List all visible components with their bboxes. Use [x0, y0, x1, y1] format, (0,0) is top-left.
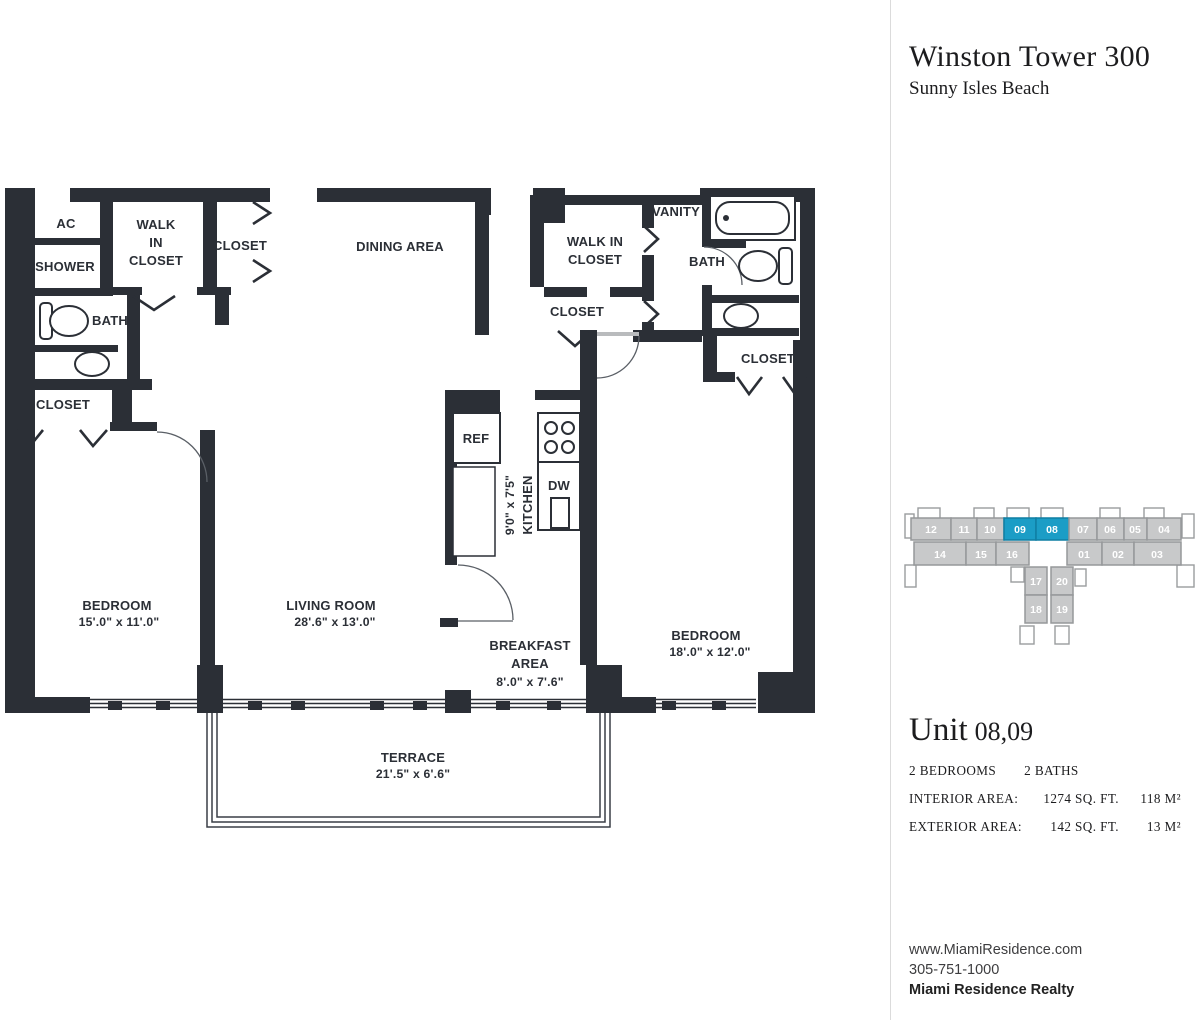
label-breakfast-1: BREAKFAST: [489, 638, 570, 653]
toilet-icon-bath1: [40, 303, 88, 339]
label-closet-bed2: CLOSET: [741, 351, 795, 366]
exterior-area-sqft: 142 SQ. FT.: [1027, 819, 1119, 835]
dishwasher-icon: [538, 462, 580, 530]
interior-area-label: INTERIOR AREA:: [909, 791, 1027, 807]
label-shower: SHOWER: [35, 259, 95, 274]
locator-units: 12 11 10 09 08 07 06 05 04 14 15 16 01 0…: [911, 518, 1181, 623]
label-bedroom2: BEDROOM: [671, 628, 740, 643]
locator-unit-01: 01: [1067, 542, 1102, 565]
building-name: Winston Tower 300: [909, 40, 1150, 74]
realtor-footer: www.MiamiResidence.com 305-751-1000 Miam…: [909, 940, 1082, 1000]
floor-plan: AC SHOWER BATH CLOSET WALK IN CLOSET CLO…: [0, 0, 890, 1020]
svg-text:09: 09: [1014, 524, 1026, 536]
interior-area-row: INTERIOR AREA: 1274 SQ. FT. 118 M²: [909, 791, 1181, 807]
svg-text:19: 19: [1056, 604, 1068, 616]
svg-text:18: 18: [1030, 604, 1042, 616]
label-bath2: BATH: [689, 254, 725, 269]
locator-unit-15: 15: [966, 542, 996, 565]
locator-unit-18: 18: [1025, 595, 1047, 623]
room-labels: AC SHOWER BATH CLOSET WALK IN CLOSET CLO…: [35, 204, 795, 781]
locator-unit-11: 11: [951, 518, 977, 540]
label-ref: REF: [463, 431, 490, 446]
website-url: www.MiamiResidence.com: [909, 940, 1082, 960]
svg-text:01: 01: [1078, 549, 1090, 561]
locator-unit-02: 02: [1102, 542, 1134, 565]
label-closet-top: CLOSET: [213, 238, 267, 253]
sliding-doors-windows: [90, 700, 756, 711]
svg-text:10: 10: [984, 524, 996, 536]
sink-icon-bath2: [724, 304, 758, 328]
exterior-area-label: EXTERIOR AREA:: [909, 819, 1027, 835]
svg-text:20: 20: [1056, 576, 1068, 588]
locator-unit-03: 03: [1134, 542, 1181, 565]
toilet-icon-bath2: [739, 248, 792, 284]
label-living: LIVING ROOM: [286, 598, 376, 613]
locator-unit-17: 17: [1025, 567, 1047, 595]
label-kitchen: KITCHEN: [520, 475, 535, 534]
svg-text:17: 17: [1030, 576, 1042, 588]
label-breakfast-2: AREA: [511, 656, 549, 671]
svg-text:14: 14: [934, 549, 946, 561]
svg-text:04: 04: [1158, 524, 1170, 536]
label-dw: DW: [548, 478, 571, 493]
label-breakfast-dims: 8'.0" x 7'.6": [496, 675, 563, 689]
label-closet-bed1: CLOSET: [36, 397, 90, 412]
label-wic1-2: IN: [149, 235, 162, 250]
label-terrace-dims: 21'.5" x 6'.6": [376, 767, 450, 781]
company-name: Miami Residence Realty: [909, 980, 1082, 1000]
svg-text:15: 15: [975, 549, 987, 561]
sink-icon-bath1: [75, 352, 109, 376]
label-bedroom1: BEDROOM: [82, 598, 151, 613]
svg-text:16: 16: [1006, 549, 1018, 561]
label-bedroom2-dims: 18'.0" x 12'.0": [669, 645, 750, 659]
locator-unit-19: 19: [1051, 595, 1073, 623]
unit-heading: Unit08,09: [909, 712, 1181, 749]
svg-text:05: 05: [1129, 524, 1141, 536]
exterior-area-m2: 13 M²: [1119, 819, 1181, 835]
svg-text:07: 07: [1077, 524, 1089, 536]
flyer-page: AC SHOWER BATH CLOSET WALK IN CLOSET CLO…: [0, 0, 1195, 1020]
stove-icon: [538, 413, 580, 462]
label-wic1-1: WALK: [136, 217, 175, 232]
svg-text:08: 08: [1046, 524, 1058, 536]
label-terrace: TERRACE: [381, 750, 445, 765]
label-wic1-3: CLOSET: [129, 253, 183, 268]
locator-unit-07: 07: [1069, 518, 1097, 540]
bed-bath-row: 2 BEDROOMS 2 BATHS: [909, 763, 1181, 779]
svg-text:11: 11: [958, 524, 969, 536]
locator-unit-09: 09: [1004, 518, 1036, 540]
bathtub-icon: [710, 196, 795, 240]
label-vanity: VANITY: [652, 204, 700, 219]
svg-text:02: 02: [1112, 549, 1124, 561]
baths-count: 2 BATHS: [1024, 763, 1078, 779]
unit-word: Unit: [909, 712, 968, 748]
label-wic2-1: WALK IN: [567, 234, 623, 249]
svg-text:06: 06: [1104, 524, 1116, 536]
svg-text:12: 12: [925, 524, 937, 536]
label-kitchen-dims: 9'0" x 7'5": [503, 475, 517, 535]
exterior-area-row: EXTERIOR AREA: 142 SQ. FT. 13 M²: [909, 819, 1181, 835]
bedrooms-count: 2 BEDROOMS: [909, 763, 996, 779]
locator-unit-14: 14: [914, 542, 966, 565]
label-dining: DINING AREA: [356, 239, 444, 254]
info-panel: Winston Tower 300 Sunny Isles Beach: [890, 0, 1195, 1020]
unit-info: Unit08,09 2 BEDROOMS 2 BATHS INTERIOR AR…: [909, 712, 1181, 835]
interior-area-sqft: 1274 SQ. FT.: [1027, 791, 1119, 807]
label-living-dims: 28'.6" x 13'.0": [294, 615, 375, 629]
locator-unit-05: 05: [1124, 518, 1147, 540]
label-closet-hall: CLOSET: [550, 304, 604, 319]
locator-unit-12: 12: [911, 518, 951, 540]
locator-unit-16: 16: [996, 542, 1029, 565]
unit-locator-diagram: 12 11 10 09 08 07 06 05 04 14 15 16 01 0…: [904, 505, 1195, 650]
locator-unit-04: 04: [1147, 518, 1181, 540]
interior-area-m2: 118 M²: [1119, 791, 1181, 807]
locator-unit-08: 08: [1036, 518, 1069, 540]
locator-unit-10: 10: [977, 518, 1004, 540]
unit-number: 08,09: [975, 717, 1034, 746]
label-bath1: BATH: [92, 313, 128, 328]
building-location: Sunny Isles Beach: [909, 78, 1049, 100]
phone-number: 305-751-1000: [909, 960, 1082, 980]
locator-unit-06: 06: [1097, 518, 1124, 540]
svg-text:03: 03: [1151, 549, 1163, 561]
label-bedroom1-dims: 15'.0" x 11'.0": [79, 615, 160, 629]
label-wic2-2: CLOSET: [568, 252, 622, 267]
locator-unit-20: 20: [1051, 567, 1073, 595]
label-ac: AC: [56, 216, 76, 231]
